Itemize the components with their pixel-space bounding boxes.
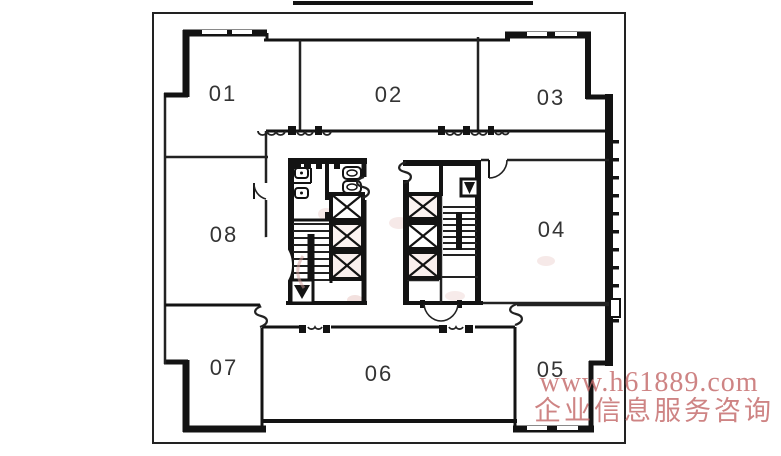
right-elevator-bank xyxy=(407,194,439,278)
room-label-01: 01 xyxy=(209,81,237,106)
elevator-icon xyxy=(407,223,439,249)
room-label-03: 03 xyxy=(537,85,565,110)
room-label-04: 04 xyxy=(538,217,566,242)
room-label-06: 06 xyxy=(365,361,393,386)
floor-plan-page: 01 02 03 04 05 06 07 08 www.h61889.com 企… xyxy=(0,0,781,456)
elevator-icon xyxy=(331,194,363,220)
elevator-icon xyxy=(331,223,363,249)
elevator-icon xyxy=(407,194,439,219)
right-wall-bracket xyxy=(610,299,620,317)
room-label-07: 07 xyxy=(210,355,238,380)
watermark-url: www.h61889.com xyxy=(539,367,758,398)
elevator-icon xyxy=(407,252,439,278)
floor-plan-drawing: 01 02 03 04 05 06 07 08 www.h61889.com 企… xyxy=(0,0,781,456)
right-vent-shaft-icon xyxy=(461,179,478,196)
room-label-08: 08 xyxy=(210,222,238,247)
room-label-02: 02 xyxy=(375,82,403,107)
left-elevator-bank xyxy=(331,194,363,279)
watermark-caption: 企业信息服务咨询 xyxy=(534,396,774,426)
site-watermark: www.h61889.com 企业信息服务咨询 xyxy=(534,367,774,426)
elevator-icon xyxy=(331,252,363,279)
